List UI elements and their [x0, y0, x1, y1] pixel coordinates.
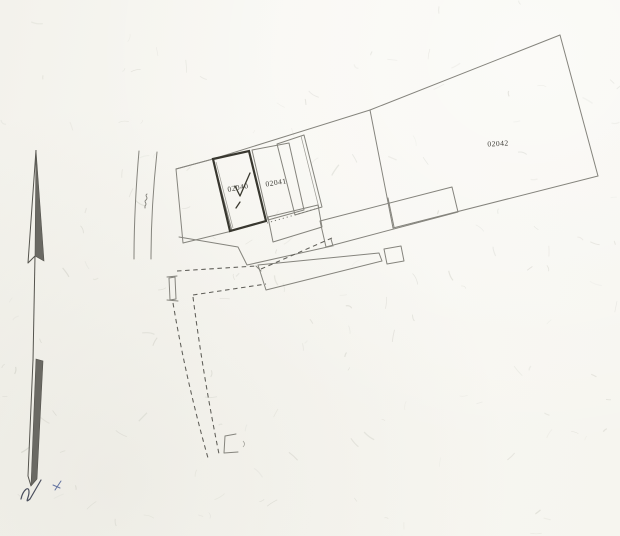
- road-edge-right: [151, 152, 157, 259]
- road-edge-left: [134, 151, 139, 259]
- fence-lines: [167, 238, 333, 458]
- parcel-block: [176, 35, 598, 290]
- north-arrow-shaft: [33, 256, 35, 361]
- fence-dashed-inner: [193, 284, 266, 295]
- north-arrowhead-fill: [35, 150, 44, 261]
- fence-dashed-north: [177, 266, 256, 271]
- gate-post-cap-bottom: [167, 300, 178, 301]
- scanned-plan-page: 02040 02041 02042: [0, 0, 620, 536]
- parcel-02040-inner-line: [216, 162, 233, 228]
- north-arrow-tail-fill: [31, 359, 43, 486]
- building-footprint-east: [320, 187, 458, 247]
- parcel-02040-tick-mark: [236, 202, 240, 208]
- parcel-02041-label: 02041: [265, 176, 287, 188]
- gate-post: [169, 277, 176, 300]
- signature-tick-mark: [53, 481, 61, 490]
- outbuilding-square: [384, 246, 404, 264]
- enclosure-tick: [243, 441, 245, 447]
- building-footprint-rear: [277, 135, 322, 215]
- building-rear-double-wall: [301, 136, 319, 208]
- paper-texture: [1, 1, 620, 536]
- parcel-02042-label: 02042: [487, 138, 509, 148]
- parcel-labels: 02040 02041 02042: [227, 138, 509, 208]
- building-footprint-lower: [268, 205, 322, 242]
- enclosure-open-rect: [224, 434, 238, 453]
- road: [134, 151, 157, 259]
- fence-dashed-east: [193, 297, 219, 454]
- yard-boundary: [179, 237, 332, 265]
- site-plan-svg: 02040 02041 02042: [0, 0, 620, 536]
- fence-dashed-west: [173, 303, 208, 458]
- parcel-02042-right-edge: [560, 35, 598, 176]
- parcel-02042-left-divider: [370, 110, 393, 228]
- block-top-boundary: [176, 35, 560, 169]
- road-annotation-squiggle: [145, 194, 147, 208]
- parcel-02042-bottom-edge: [393, 176, 598, 228]
- gate-post-cap-top: [167, 276, 177, 277]
